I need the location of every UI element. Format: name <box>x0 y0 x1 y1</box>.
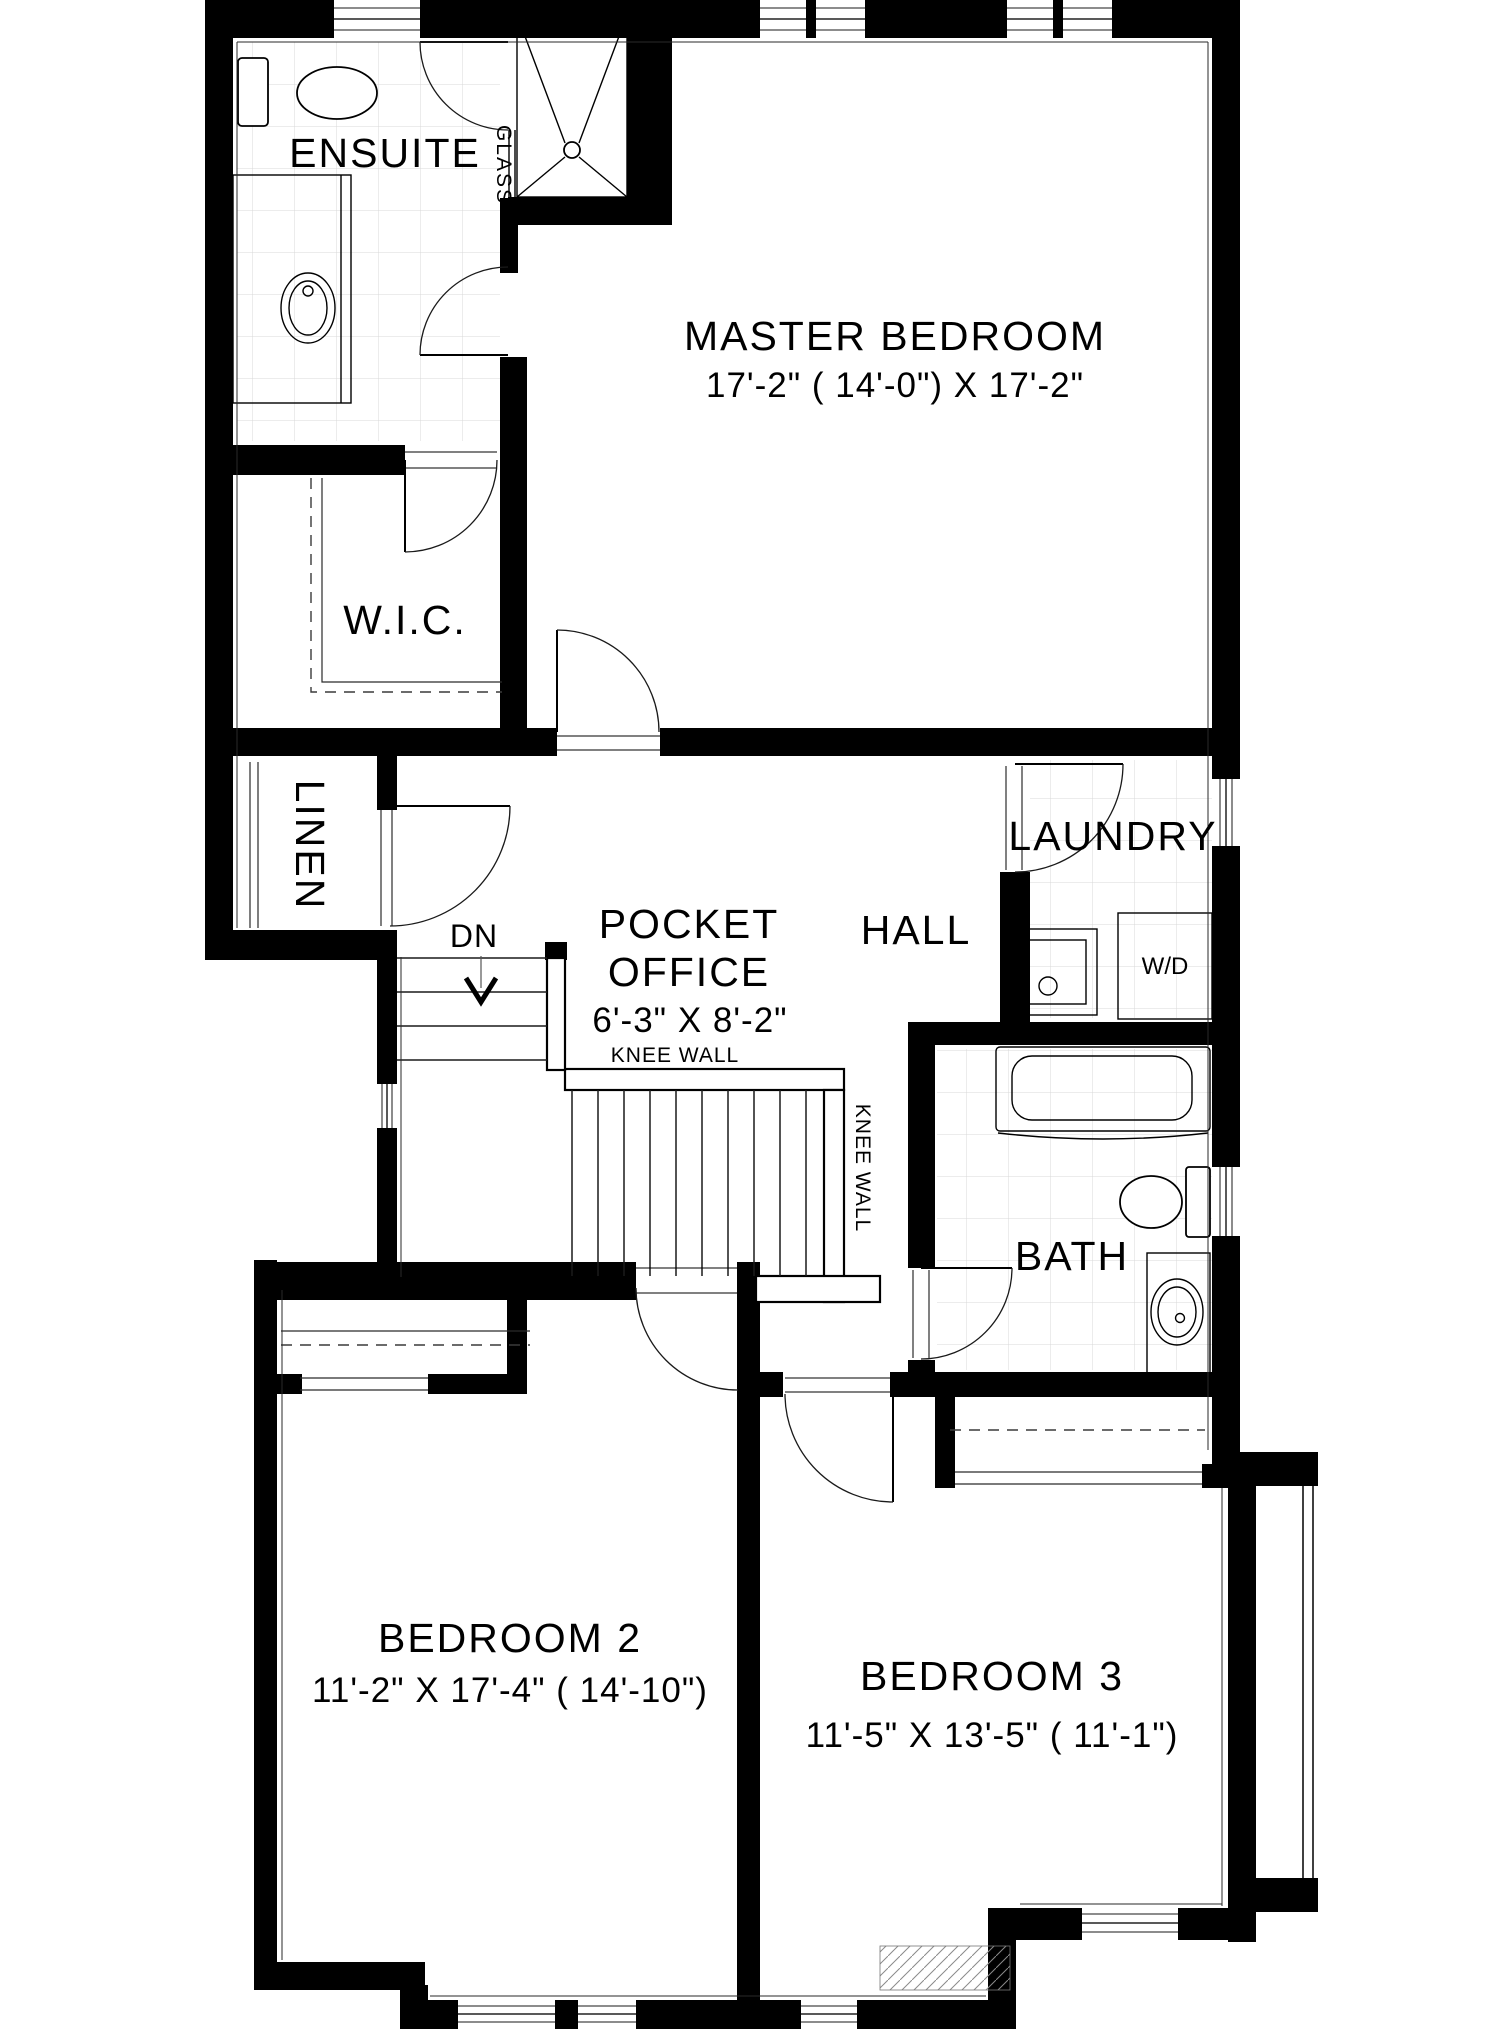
washer-dryer-label: W/D <box>1142 953 1189 980</box>
linen-door <box>381 806 510 926</box>
laundry-label: LAUNDRY <box>1008 813 1217 859</box>
wic-door <box>405 452 497 552</box>
wall-bath-south <box>890 1372 1240 1397</box>
wall-exterior-left <box>205 0 233 960</box>
master-window-east <box>1000 0 1119 38</box>
exterior-step-hatch <box>880 1946 1010 1990</box>
wall-bedroom2-north <box>254 1262 636 1300</box>
wall-bedroom2-southwest-step <box>254 1962 425 1990</box>
wall-laundry-bath-divider <box>908 1022 1240 1045</box>
stairs-down-arrow-icon <box>466 956 496 1002</box>
wall-bath-west-a <box>908 1045 935 1268</box>
wall-linen-south <box>205 930 397 960</box>
wall-bedroom2-closet-front-b <box>428 1374 527 1394</box>
master-bedroom-dims: 17'-2" ( 14'-0") X 17'-2" <box>706 366 1084 405</box>
bedroom2-window-east <box>572 2000 642 2029</box>
wic-shelf-line <box>322 478 502 682</box>
bedroom2-label: BEDROOM 2 <box>378 1615 642 1661</box>
wall-bottom-band-b <box>642 2000 795 2029</box>
pocket-office-label-line2: OFFICE <box>608 949 770 995</box>
master-bedroom-label: MASTER BEDROOM <box>684 313 1106 359</box>
knee-wall-label-vertical: KNEE WALL <box>851 1104 874 1232</box>
bedroom2-door <box>636 1268 738 1390</box>
hall-label: HALL <box>861 907 972 953</box>
wall-bedroom2-closet-east <box>507 1300 527 1374</box>
bedroom3-window-south <box>1075 1908 1185 1940</box>
knee-wall-vertical <box>824 1090 844 1302</box>
bedroom3-window-south-band <box>795 2000 863 2029</box>
master-bedroom-door <box>557 630 660 750</box>
wall-exterior-right-c <box>1212 1243 1240 1455</box>
ensuite-window <box>327 0 427 38</box>
bedroom3-door <box>785 1378 893 1502</box>
master-window-west <box>753 0 872 38</box>
wall-bedroom2-west <box>254 1260 277 1962</box>
wall-bedroom3-east <box>1228 1486 1256 1942</box>
wall-bedroom-divider <box>737 1262 760 2029</box>
linen-label: LINEN <box>287 780 333 911</box>
wall-bottom-band-a <box>404 2000 452 2029</box>
wall-stair-west-upper <box>377 950 397 1077</box>
bedroom2-window-west <box>452 2000 561 2029</box>
wic-rod-dashed <box>311 478 502 692</box>
wall-shower-east <box>627 38 672 225</box>
knee-wall-horizontal <box>565 1069 844 1090</box>
wall-wic-north <box>205 445 405 475</box>
knee-wall-bottom <box>756 1276 880 1302</box>
wall-bay-bottom-stub <box>1240 1878 1318 1912</box>
bedroom2-dims: 11'-2" X 17'-4" ( 14'-10") <box>312 1671 708 1710</box>
bedroom3-dims: 11'-5" X 13'-5" ( 11'-1") <box>806 1716 1179 1755</box>
wall-bedroom3-north-stub <box>760 1372 783 1397</box>
knee-wall-label-horizontal: KNEE WALL <box>611 1044 739 1067</box>
wall-bedroom2-closet-front-a <box>277 1374 302 1394</box>
bedroom3-label: BEDROOM 3 <box>860 1653 1124 1699</box>
wall-exterior-right-a <box>1212 0 1240 772</box>
wall-bedroom3-closet-east <box>1202 1464 1240 1488</box>
wall-hall-north-a <box>205 728 557 756</box>
bath-window <box>1212 1160 1240 1243</box>
stair-window <box>377 1077 397 1135</box>
bath-label: BATH <box>1015 1233 1129 1279</box>
pocket-office-dims: 6'-3" X 8'-2" <box>592 1001 787 1040</box>
wall-shower-south <box>508 197 672 225</box>
wall-exterior-right-b <box>1212 853 1240 1160</box>
wall-laundry-west <box>1000 872 1030 1045</box>
stairs-dn-label: DN <box>450 918 498 954</box>
ensuite-label: ENSUITE <box>289 130 481 176</box>
wall-wic-east <box>500 357 527 756</box>
wall-bottom-window-mullion <box>561 2000 572 2029</box>
wic-label: W.I.C. <box>343 597 467 643</box>
wall-hall-north-b <box>660 728 1240 756</box>
wall-stair-west-lower <box>377 1135 397 1280</box>
floor-plan: ENSUITE GLASS MASTER BEDROOM 17'-2" ( 14… <box>0 0 1500 2029</box>
stair-rail-wall <box>547 958 565 1070</box>
floor-plan-drawing: ENSUITE GLASS MASTER BEDROOM 17'-2" ( 14… <box>0 0 1500 2029</box>
glass-label: GLASS <box>492 125 515 205</box>
pocket-office-label-line1: POCKET <box>599 901 780 947</box>
wall-bedroom3-closet-west <box>935 1397 955 1488</box>
wall-linen-east <box>377 756 397 810</box>
